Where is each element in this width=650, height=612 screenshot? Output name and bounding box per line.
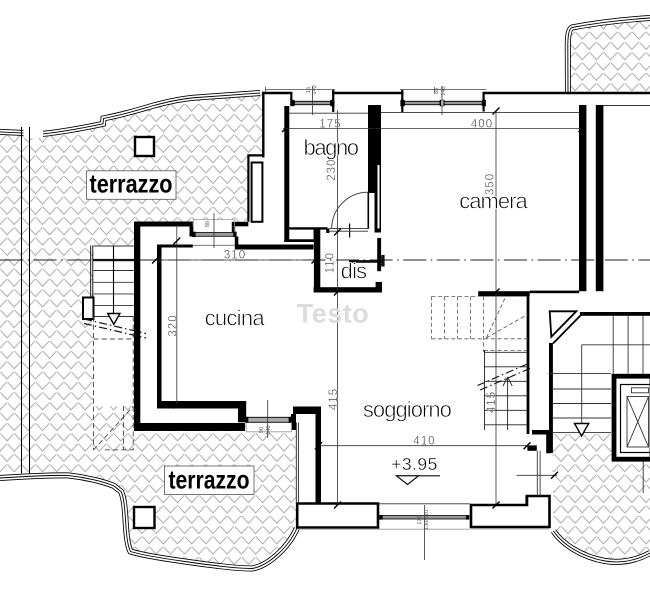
svg-text:350: 350 <box>484 173 496 195</box>
svg-text:410: 410 <box>413 435 435 447</box>
svg-text:bagno: bagno <box>304 135 360 160</box>
svg-text:130/310: 130/310 <box>424 510 430 530</box>
svg-text:415: 415 <box>486 391 498 413</box>
svg-text:400: 400 <box>471 119 493 131</box>
svg-text:175: 175 <box>417 515 423 524</box>
svg-text:140: 140 <box>312 85 318 94</box>
svg-text:90: 90 <box>259 427 265 433</box>
svg-text:80: 80 <box>205 221 211 227</box>
svg-text:dis: dis <box>341 258 368 283</box>
svg-text:85: 85 <box>434 88 440 94</box>
svg-text:140: 140 <box>266 425 272 434</box>
svg-text:310: 310 <box>224 250 246 262</box>
svg-text:320: 320 <box>167 314 179 336</box>
svg-text:230: 230 <box>326 159 338 181</box>
svg-text:110: 110 <box>324 252 336 273</box>
svg-text:175: 175 <box>319 118 341 130</box>
svg-text:cucina: cucina <box>205 306 266 331</box>
svg-text:terrazzo: terrazzo <box>169 465 250 495</box>
svg-text:terrazzo: terrazzo <box>90 169 173 199</box>
svg-text:+3.95: +3.95 <box>391 454 438 474</box>
svg-text:415: 415 <box>328 388 340 410</box>
svg-text:soggiorno: soggiorno <box>363 397 452 422</box>
svg-text:Testo: Testo <box>297 299 370 329</box>
svg-text:140: 140 <box>441 86 447 95</box>
